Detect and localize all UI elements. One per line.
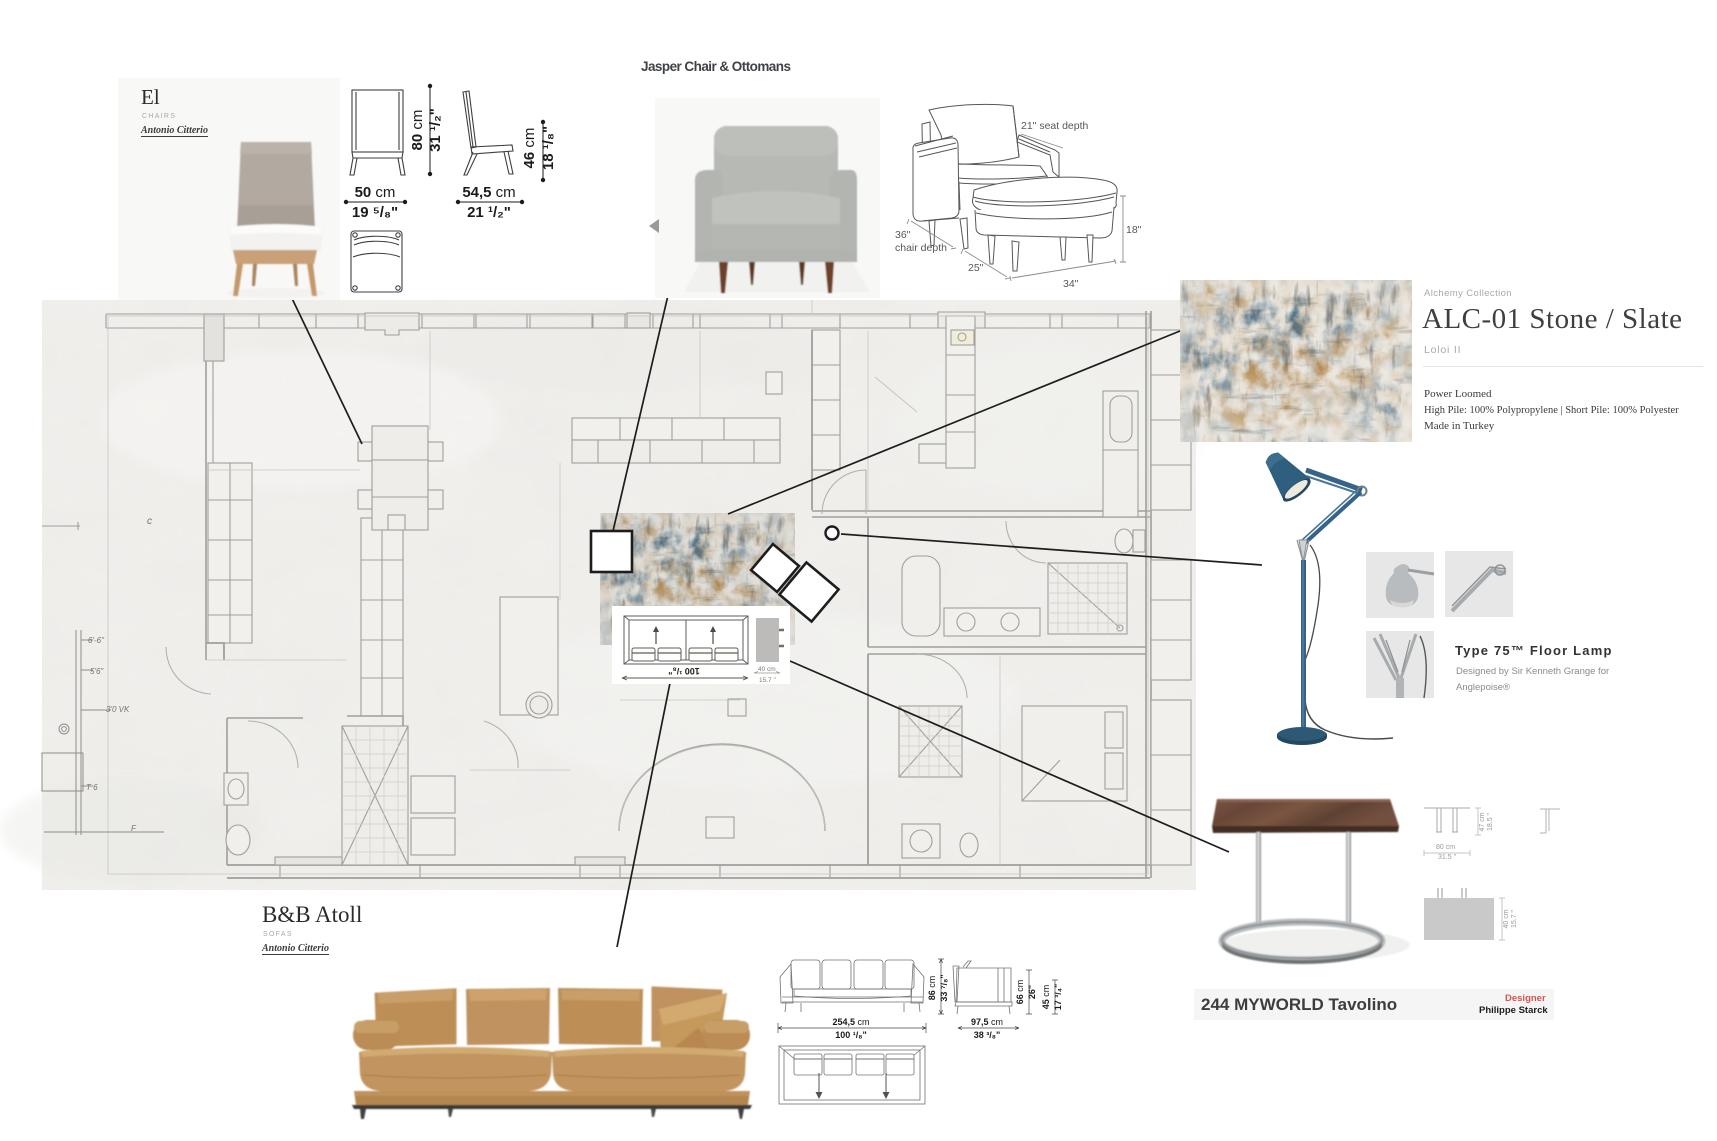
svg-text:6'-6": 6'-6" (88, 636, 105, 645)
svg-text:31.5 ": 31.5 " (1438, 854, 1457, 861)
svg-text:26": 26" (1027, 985, 1037, 999)
svg-text:c: c (147, 516, 152, 527)
svg-text:97,5 cm: 97,5 cm (971, 1017, 1003, 1027)
svg-text:34": 34" (1063, 278, 1079, 290)
svg-text:50 cm: 50 cm (355, 184, 396, 201)
svg-text:40 cm: 40 cm (1503, 909, 1510, 928)
svg-text:5'6": 5'6" (90, 667, 104, 676)
svg-text:3'0 VK: 3'0 VK (106, 705, 130, 714)
svg-text:15.7 ": 15.7 " (1511, 909, 1518, 928)
svg-text:21 ¹/₂": 21 ¹/₂" (467, 204, 511, 221)
svg-text:15.7 ": 15.7 " (759, 677, 776, 684)
svg-text:36": 36" (895, 229, 911, 241)
svg-text:46 cm: 46 cm (521, 128, 538, 169)
svg-text:19 ⁵/₈": 19 ⁵/₈" (352, 204, 398, 221)
svg-text:86 cm: 86 cm (927, 976, 937, 1001)
svg-text:T 6: T 6 (86, 783, 98, 792)
svg-text:47 cm: 47 cm (1479, 812, 1486, 831)
svg-text:45 cm: 45 cm (1041, 985, 1051, 1010)
svg-text:chair depth: chair depth (895, 242, 947, 254)
svg-text:100 ¹/₈": 100 ¹/₈" (668, 666, 700, 676)
svg-text:18.5 ": 18.5 " (1487, 812, 1494, 831)
svg-text:254,5 cm: 254,5 cm (832, 1017, 869, 1027)
svg-text:33 ⁷/₈": 33 ⁷/₈" (939, 974, 949, 1001)
svg-text:54,5 cm: 54,5 cm (462, 184, 515, 201)
svg-text:18 ¹/₈": 18 ¹/₈" (540, 126, 557, 170)
svg-text:100 ¹/₈": 100 ¹/₈" (835, 1030, 867, 1040)
svg-text:80 cm: 80 cm (1436, 844, 1455, 851)
svg-text:31 ¹/₂": 31 ¹/₂" (427, 108, 444, 152)
svg-text:17 ³/₄": 17 ³/₄" (1053, 984, 1063, 1011)
svg-text:38 ³/₈": 38 ³/₈" (974, 1030, 1001, 1040)
svg-text:18": 18" (1126, 224, 1142, 236)
svg-text:66 cm: 66 cm (1015, 980, 1025, 1005)
svg-text:25": 25" (968, 262, 984, 274)
svg-text:21" seat depth: 21" seat depth (1021, 120, 1089, 132)
svg-text:80 cm: 80 cm (409, 110, 426, 151)
svg-text:40 cm: 40 cm (758, 666, 776, 673)
